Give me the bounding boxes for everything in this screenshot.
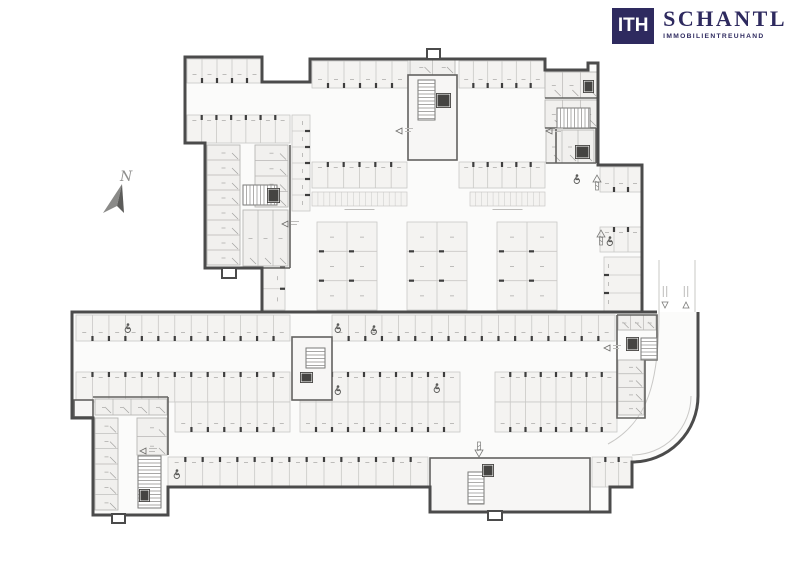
staircase	[306, 348, 325, 368]
parking-stall-row	[300, 402, 460, 432]
parking-stall-row	[604, 257, 642, 311]
storage-room-strip	[618, 360, 644, 415]
logo-subtitle: IMMOBILIENTREUHAND	[663, 33, 787, 40]
storage-room-strip	[95, 418, 118, 510]
logo: ITH SCHANTL IMMOBILIENTREUHAND	[612, 8, 787, 44]
parking-stall-row	[76, 315, 290, 341]
elevator	[267, 188, 280, 203]
north-label: N	[119, 169, 133, 185]
logo-monogram-text: ITH	[618, 15, 649, 37]
staircase	[557, 108, 590, 128]
elevator	[436, 93, 451, 108]
door-nib	[427, 49, 440, 59]
logo-monogram: ITH	[612, 8, 654, 44]
north-arrow: N	[103, 169, 133, 213]
door-nib	[222, 268, 236, 278]
parking-islands	[317, 222, 557, 310]
parking-stall-row	[592, 457, 632, 487]
ramp-direction-label	[683, 286, 689, 308]
storage-room-strip	[207, 145, 240, 265]
parking-stall-row	[187, 115, 290, 143]
parking-island	[497, 222, 557, 310]
parking-stall-row	[187, 59, 262, 83]
storage-room-strip	[618, 315, 656, 330]
garage-floor-plan: N	[0, 0, 800, 566]
ramp-direction-label	[662, 286, 668, 308]
parking-stall-row	[332, 315, 615, 341]
parking-stall-row	[495, 372, 617, 402]
parking-stall-row	[312, 162, 407, 188]
parking-stall-row	[175, 402, 290, 432]
parking-stall-row	[600, 227, 642, 252]
door-nib	[112, 514, 125, 523]
elevator	[139, 489, 150, 502]
parking-stall-row	[495, 402, 617, 432]
floorplan-page: N ITH SCHANTL IMMOBILIENTREUHAND	[0, 0, 800, 566]
logo-name: SCHANTL	[663, 8, 787, 30]
storage-room-strip	[137, 418, 167, 455]
elevator	[300, 372, 313, 383]
parking-stall-row	[168, 457, 428, 487]
storage-room-strip	[243, 210, 288, 266]
staircase	[418, 80, 435, 120]
elevator	[583, 80, 594, 93]
parking-stall-row	[600, 167, 642, 192]
parking-stall-row	[459, 61, 545, 88]
elevator	[482, 464, 494, 477]
elevator	[575, 145, 590, 159]
storage-room-strip	[95, 399, 167, 415]
parking-stall-row	[312, 61, 408, 88]
staircase	[468, 472, 484, 504]
parking-stall-row	[459, 162, 545, 188]
parking-island	[317, 222, 377, 310]
elevator	[626, 337, 639, 351]
parking-stall-row	[292, 115, 310, 211]
parking-island	[407, 222, 467, 310]
door-nib	[488, 511, 502, 520]
staircase	[641, 338, 657, 360]
logo-wordmark: SCHANTL IMMOBILIENTREUHAND	[663, 8, 787, 40]
storage-room-strip	[410, 59, 455, 75]
